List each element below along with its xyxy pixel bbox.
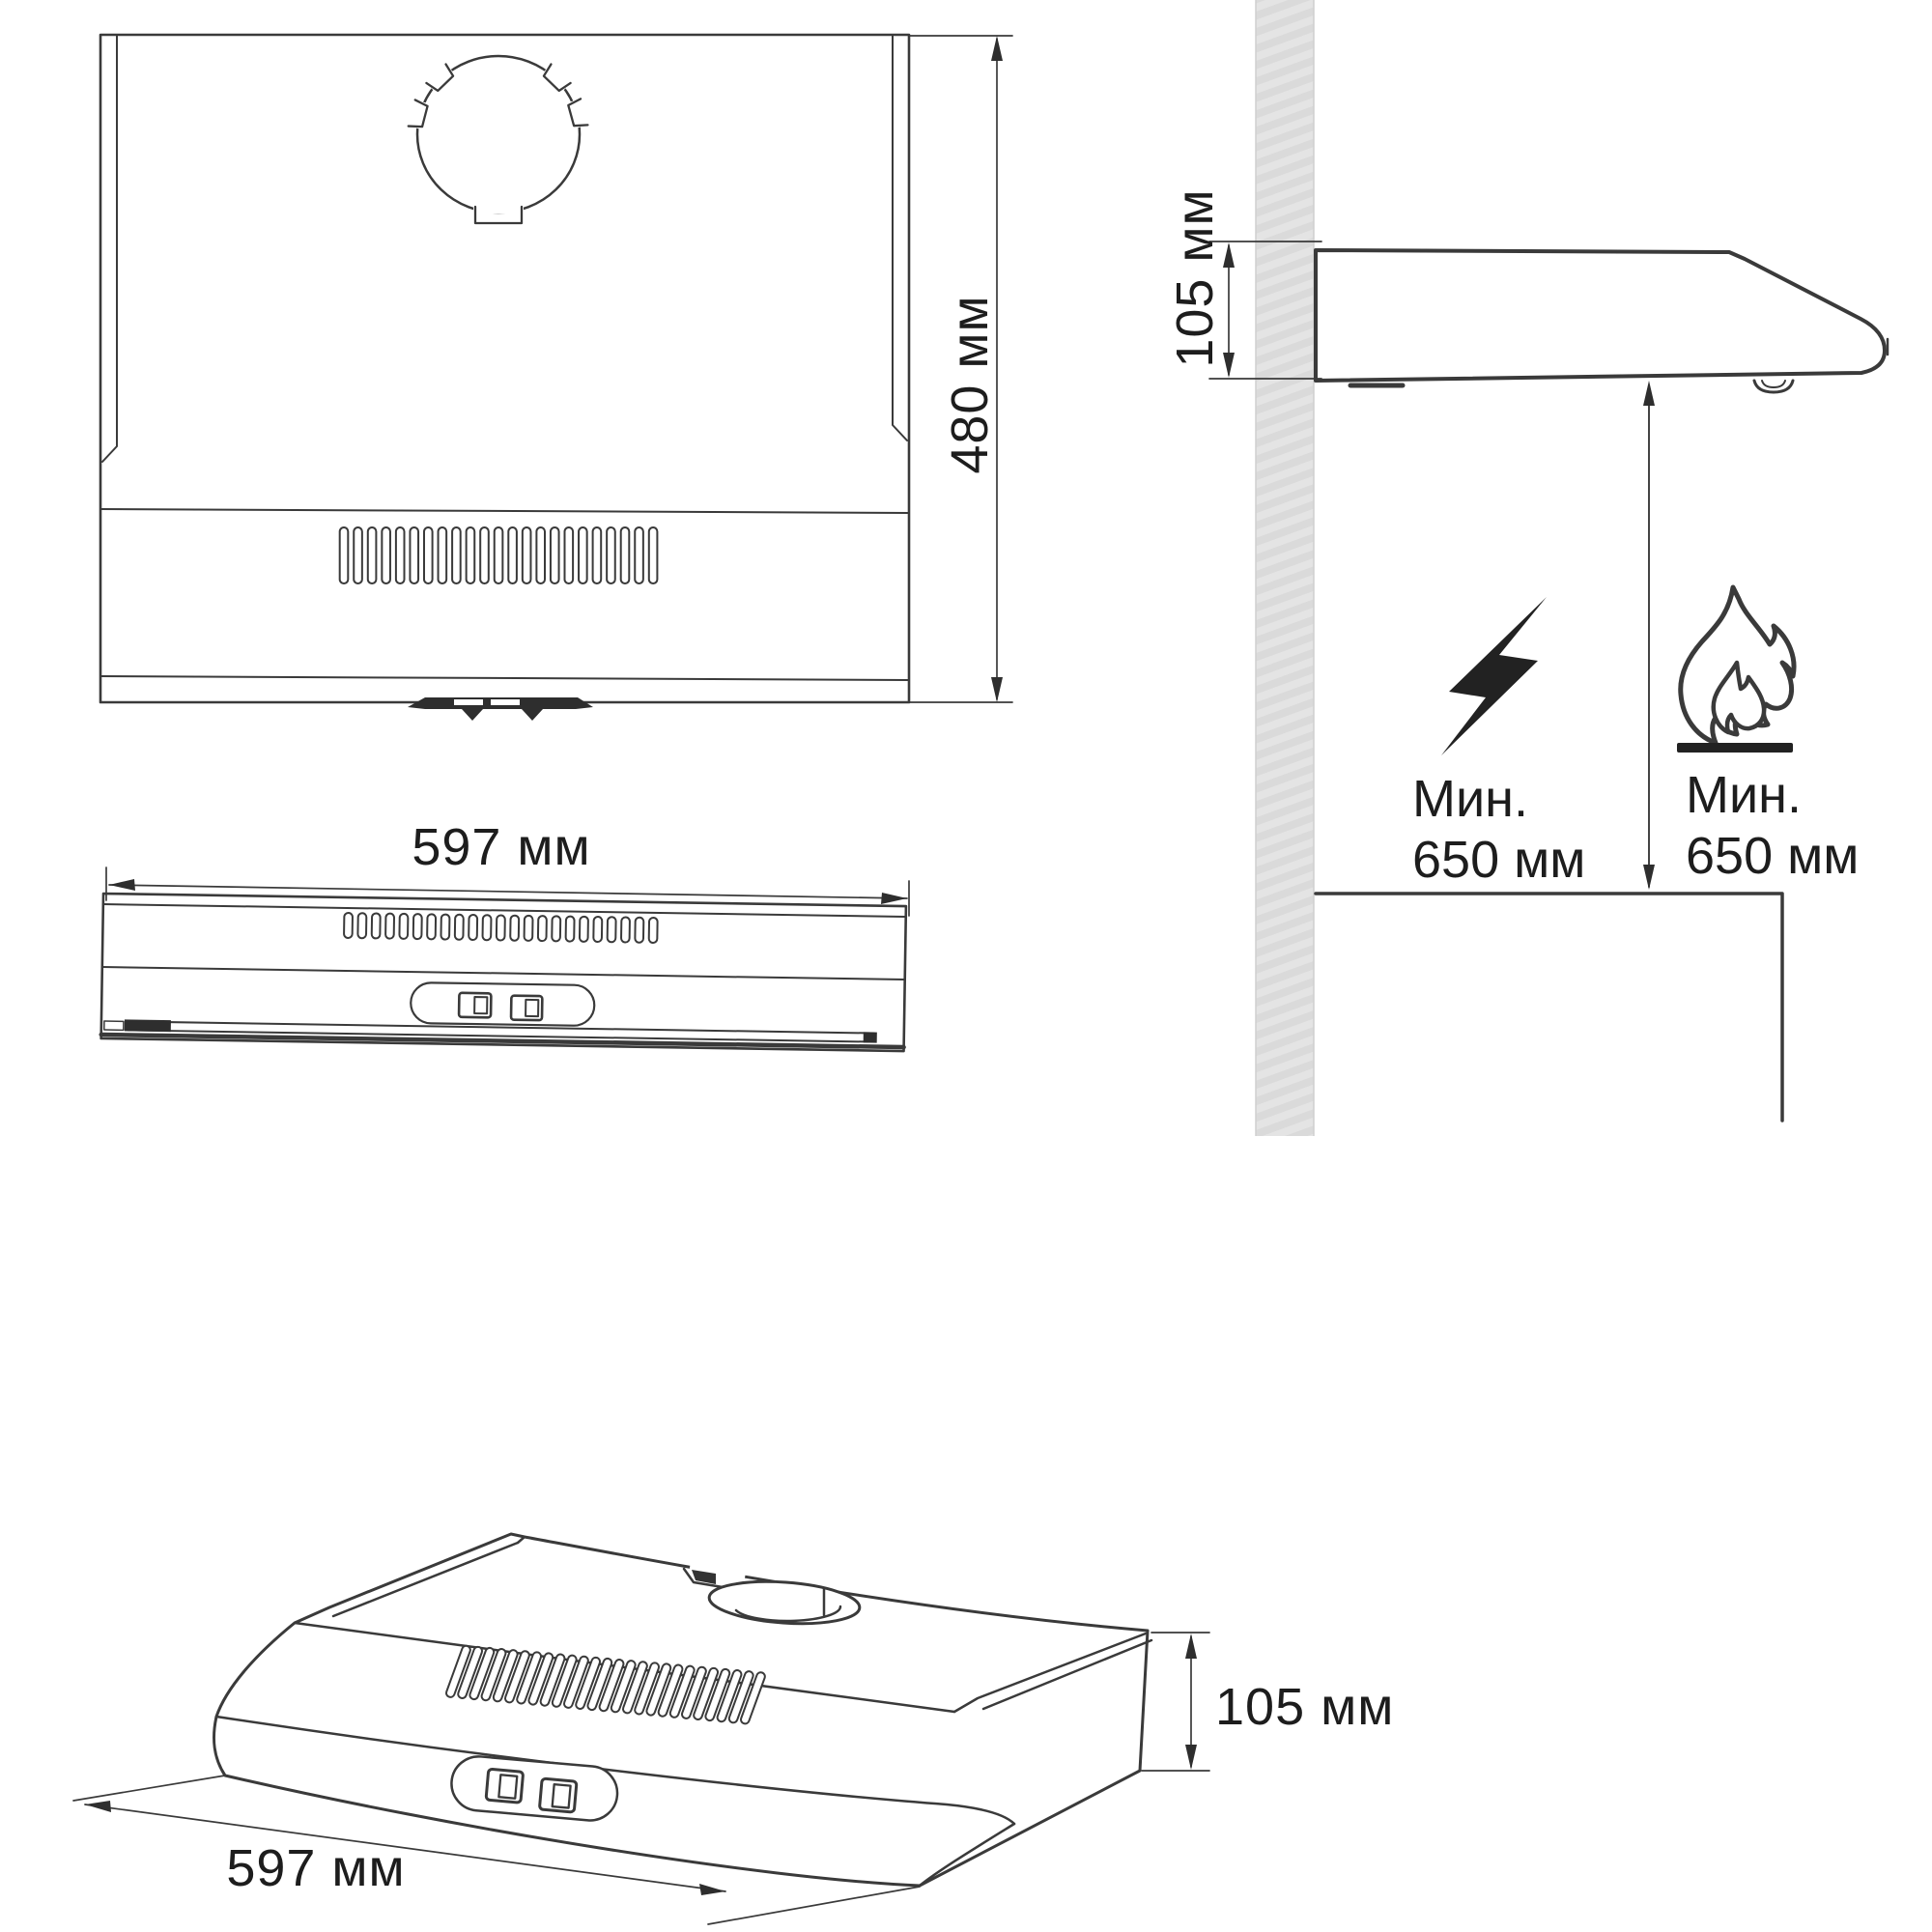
perspective-width-label: 597 мм bbox=[226, 1838, 405, 1898]
top-view-drawing bbox=[100, 35, 909, 721]
front-view-drawing bbox=[101, 894, 906, 1051]
range-hood-installation-drawing: 480 мм 597 мм 105 мм Мин. 650 мм Мин. 65… bbox=[0, 0, 1932, 1932]
side-view-depth-label: 105 мм bbox=[1165, 188, 1225, 367]
gas-clearance-line2: 650 мм bbox=[1686, 826, 1859, 887]
front-view-vent-slots bbox=[344, 913, 658, 943]
top-view-handle bbox=[408, 697, 593, 721]
electric-clearance-line2: 650 мм bbox=[1412, 830, 1585, 891]
perspective-height-dimension bbox=[1142, 1633, 1209, 1771]
wall-section bbox=[1256, 0, 1314, 1136]
top-view-height-label: 480 мм bbox=[940, 295, 1000, 473]
flame-icon bbox=[1677, 587, 1794, 753]
top-view-vent-slots bbox=[340, 527, 658, 583]
perspective-height-label: 105 мм bbox=[1215, 1677, 1394, 1737]
hob-clearance-dimension bbox=[1643, 381, 1655, 890]
front-view-width-label: 597 мм bbox=[412, 817, 590, 877]
gas-clearance-label: Мин. 650 мм bbox=[1686, 765, 1859, 887]
perspective-view-drawing bbox=[213, 1534, 1151, 1886]
side-view-drawing bbox=[1316, 250, 1888, 392]
lightning-bolt-icon bbox=[1441, 597, 1547, 755]
gas-clearance-line1: Мин. bbox=[1686, 765, 1859, 826]
countertop-outline bbox=[1316, 894, 1782, 1121]
electric-clearance-line1: Мин. bbox=[1412, 769, 1585, 830]
drawing-canvas bbox=[0, 0, 1932, 1932]
electric-clearance-label: Мин. 650 мм bbox=[1412, 769, 1585, 891]
